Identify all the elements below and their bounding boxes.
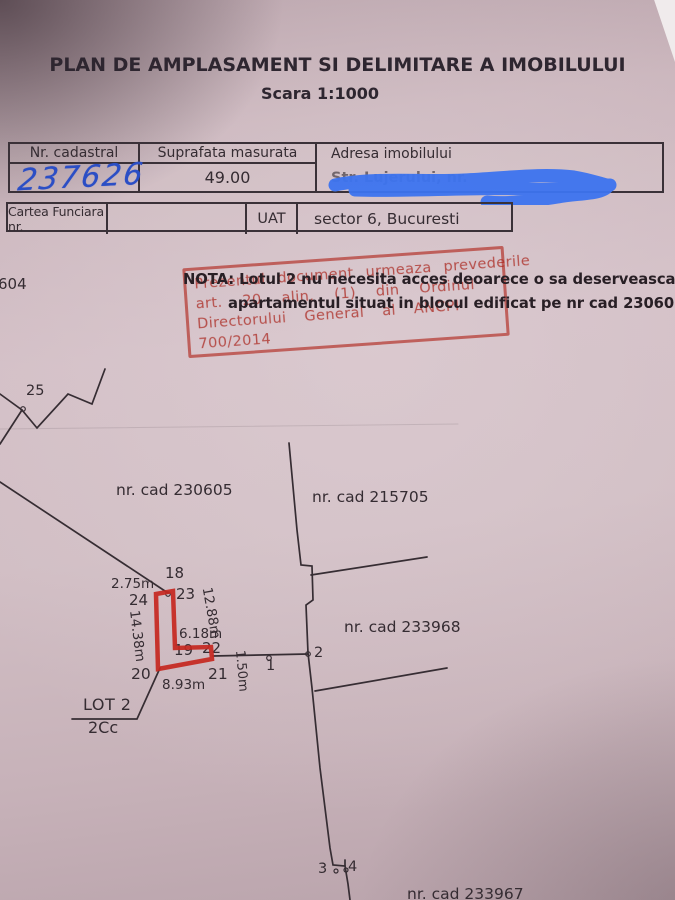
diagonal-branch-upper	[311, 557, 427, 575]
lot2-red-outline	[156, 591, 212, 669]
nota-line-1: NOTA: Lotul 2 nu necesita acces deoarece…	[183, 271, 675, 288]
scanned-cadastral-plan-photo: PLAN DE AMPLASAMENT SI DELIMITARE A IMOB…	[0, 0, 675, 900]
main-vertical-boundary	[289, 443, 350, 900]
boundary-diagonal-line	[0, 482, 168, 593]
diagonal-branch-lower	[315, 668, 447, 691]
lot2-leader-line	[72, 668, 160, 719]
boundary-branch-line	[0, 410, 22, 444]
nota-line-2: apartamentul situat in blocul edificat p…	[228, 295, 675, 312]
plan-linework	[0, 0, 675, 900]
segment-21-to-2	[213, 654, 308, 656]
fold-artifact-line	[0, 424, 458, 429]
point-1-marker	[267, 656, 272, 661]
point-3-marker	[334, 869, 338, 873]
